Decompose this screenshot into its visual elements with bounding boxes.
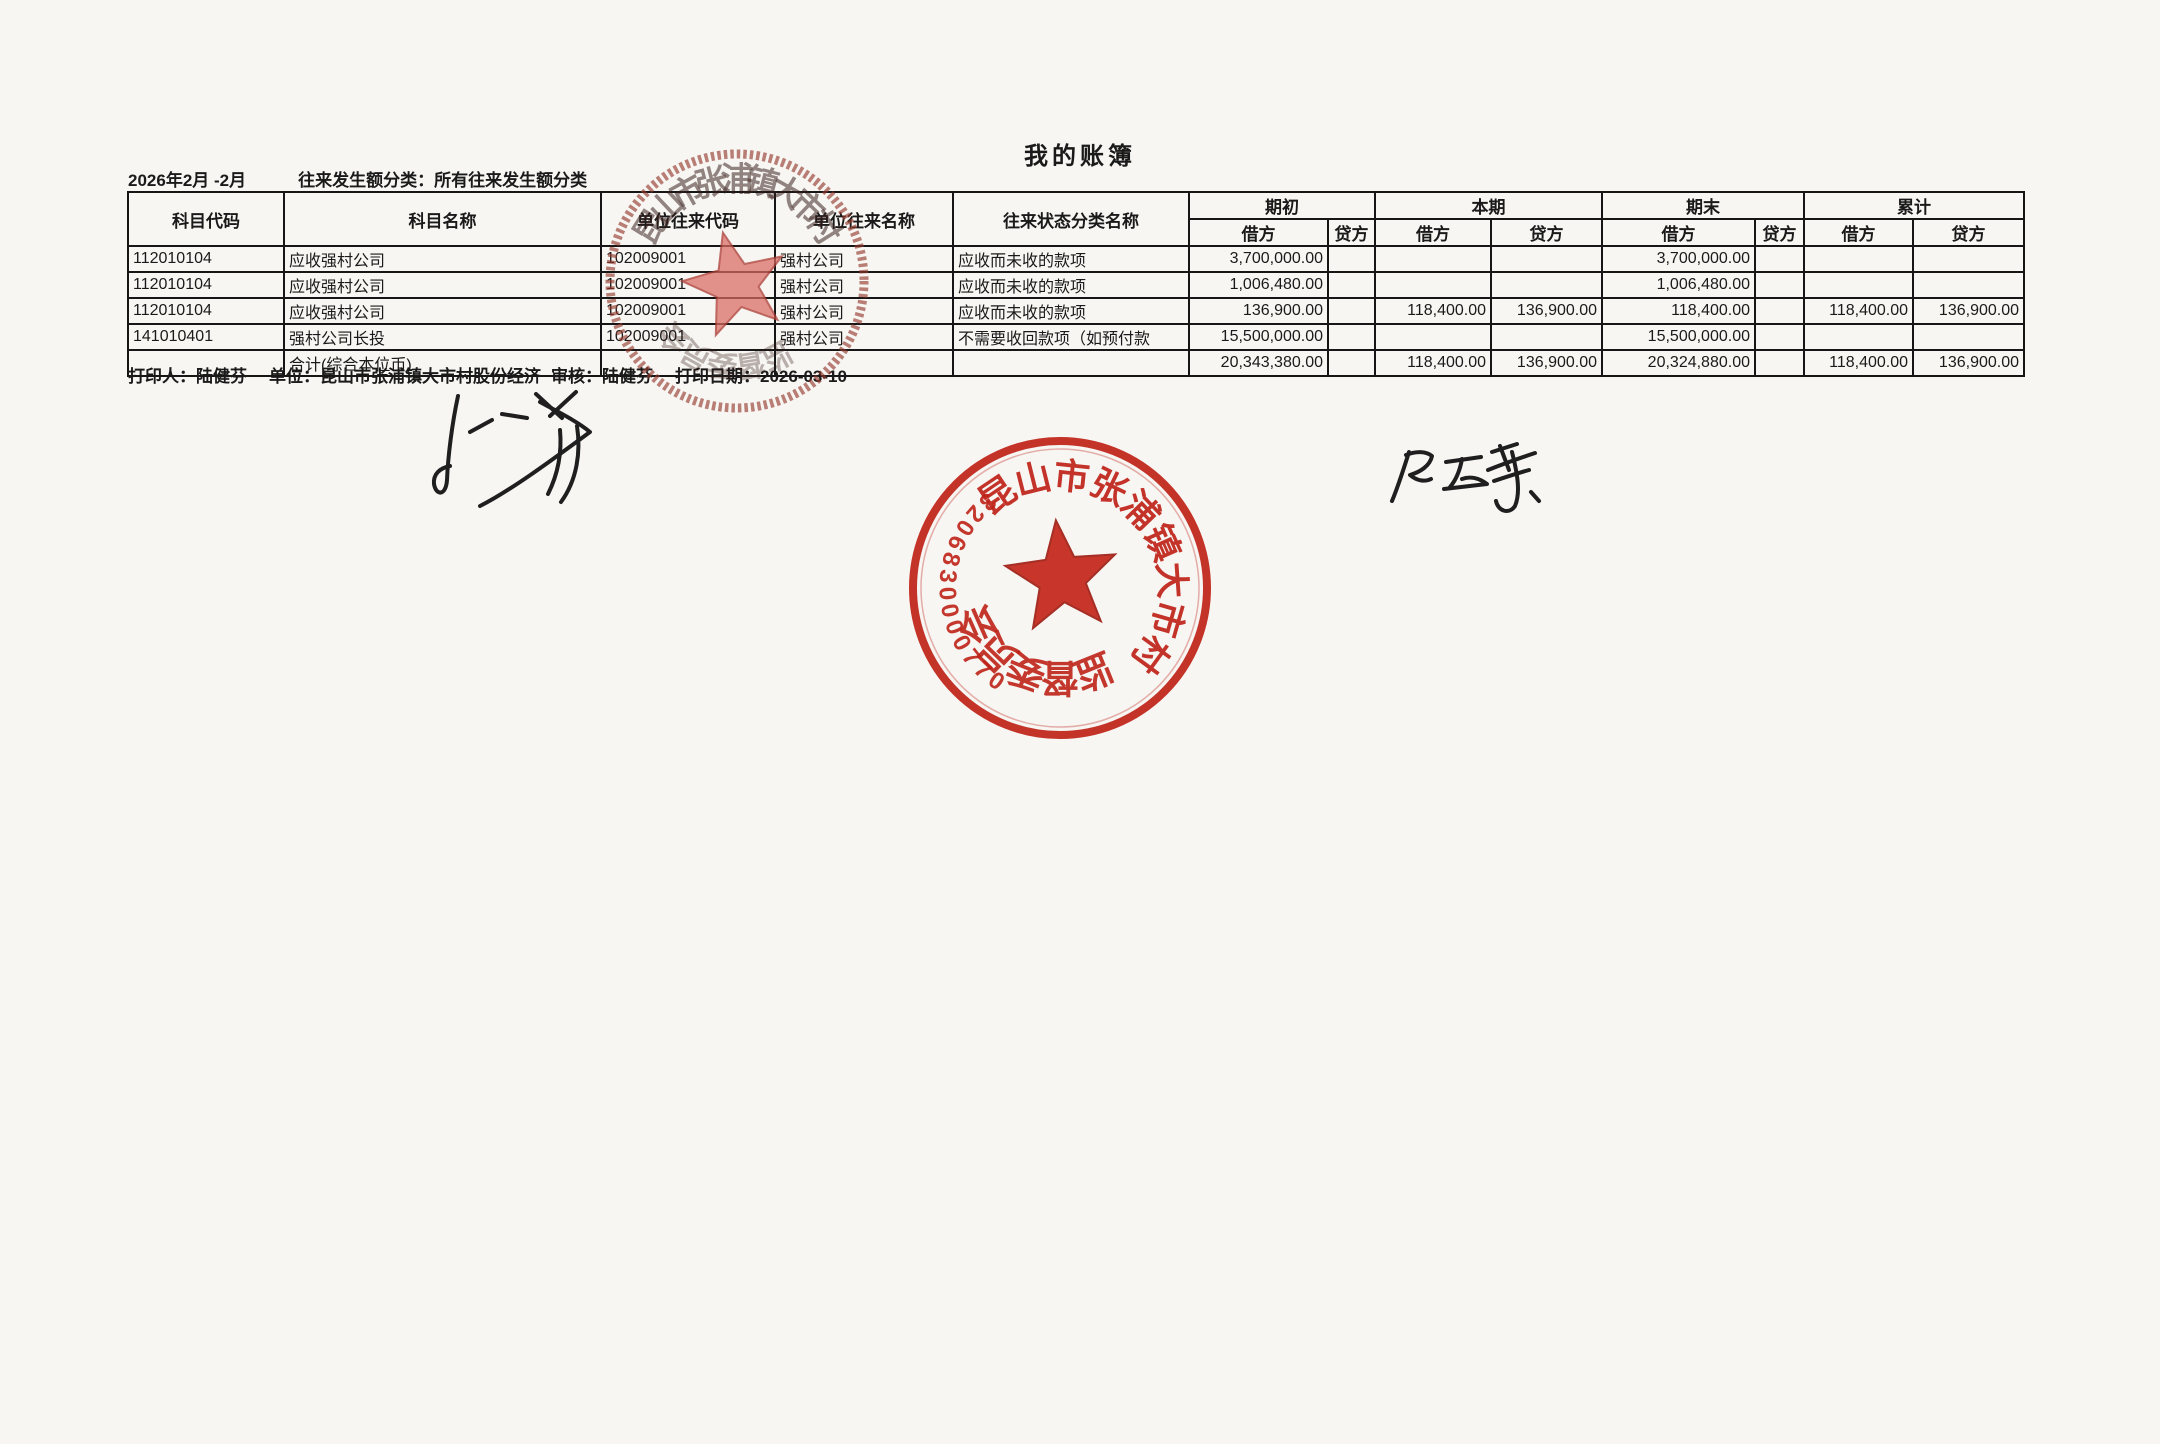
signature-right-ink: [1392, 444, 1539, 511]
cell-accum-debit: 118,400.00: [1804, 350, 1913, 376]
scanned-ledger-page: 我的账簿 2026年2月 -2月往来发生额分类：所有往来发生额分类 科目代码 科…: [0, 0, 2160, 1444]
subheader-credit: 贷方: [1755, 219, 1804, 246]
cell-status: 应收而未收的款项: [953, 246, 1189, 272]
cell-partner-name: 强村公司: [775, 246, 953, 272]
cell-initial-debit: 136,900.00: [1189, 298, 1328, 324]
cell-name: 应收强村公司: [284, 272, 601, 298]
cell-accum-credit: [1913, 272, 2024, 298]
star-icon: [1005, 520, 1115, 628]
table-row: 141010401 强村公司长投 102009001 强村公司 不需要收回款项（…: [128, 324, 2024, 350]
col-header-partner-code: 单位往来代码: [601, 192, 775, 246]
subheader-credit: 贷方: [1328, 219, 1375, 246]
cell-ending-credit: [1755, 324, 1804, 350]
cell-accum-debit: [1804, 246, 1913, 272]
cell-status: 应收而未收的款项: [953, 298, 1189, 324]
svg-text:督: 督: [1041, 656, 1079, 698]
cell-accum-debit: [1804, 272, 1913, 298]
report-filter: 往来发生额分类：所有往来发生额分类: [298, 171, 587, 190]
cell-ending-credit: [1755, 350, 1804, 376]
table-row: 112010104 应收强村公司 102009001 强村公司 应收而未收的款项…: [128, 298, 2024, 324]
cell-accum-credit: [1913, 324, 2024, 350]
col-header-name: 科目名称: [284, 192, 601, 246]
col-header-status: 往来状态分类名称: [953, 192, 1189, 246]
svg-text:0: 0: [946, 631, 976, 656]
group-header-ending: 期末: [1602, 192, 1804, 219]
cell-ending-credit: [1755, 246, 1804, 272]
cell-initial-credit: [1328, 324, 1375, 350]
svg-text:7: 7: [969, 656, 997, 685]
svg-text:0: 0: [983, 666, 1009, 696]
svg-text:3: 3: [974, 487, 1002, 516]
cell-ending-debit: 118,400.00: [1602, 298, 1755, 324]
cell-initial-credit: [1328, 298, 1375, 324]
svg-text:0: 0: [950, 515, 980, 541]
footer-auditor: 审核：陆健芬: [551, 367, 653, 386]
cell-initial-debit: 3,700,000.00: [1189, 246, 1328, 272]
cell-current-credit: [1491, 246, 1602, 272]
cell-code: 112010104: [128, 298, 284, 324]
cell-current-debit: 118,400.00: [1375, 298, 1491, 324]
cell-accum-debit: 118,400.00: [1804, 298, 1913, 324]
cell-initial-debit: 1,006,480.00: [1189, 272, 1328, 298]
cell-initial-credit: [1328, 246, 1375, 272]
cell-ending-credit: [1755, 298, 1804, 324]
cell-partner-code: 102009001: [601, 324, 775, 350]
cell-ending-credit: [1755, 272, 1804, 298]
cell-status: 应收而未收的款项: [953, 272, 1189, 298]
cell-code: 112010104: [128, 246, 284, 272]
subheader-credit: 贷方: [1913, 219, 2024, 246]
report-period: 2026年2月 -2月: [128, 171, 246, 190]
cell-accum-credit: 136,900.00: [1913, 350, 2024, 376]
subheader-debit: 借方: [1375, 219, 1491, 246]
cell-partner-name: 强村公司: [775, 298, 953, 324]
svg-text:0: 0: [939, 616, 969, 638]
svg-text:大: 大: [1150, 561, 1193, 600]
cell-accum-credit: [1913, 246, 2024, 272]
cell-current-credit: [1491, 324, 1602, 350]
cell-name: 强村公司长投: [284, 324, 601, 350]
svg-text:0: 0: [935, 601, 964, 620]
cell-current-debit: [1375, 246, 1491, 272]
official-seal-red: 昆山市张浦镇大市村监督委员会3206830000770: [913, 441, 1207, 735]
group-header-accum: 累计: [1804, 192, 2024, 219]
svg-text:市: 市: [1143, 596, 1192, 642]
table-row: 112010104 应收强村公司 102009001 强村公司 应收而未收的款项…: [128, 272, 2024, 298]
svg-text:3: 3: [934, 568, 962, 584]
cell-accum-debit: [1804, 324, 1913, 350]
cell-current-credit: 136,900.00: [1491, 350, 1602, 376]
cell-initial-debit: 20,343,380.00: [1189, 350, 1328, 376]
ledger-table: 科目代码 科目名称 单位往来代码 单位往来名称 往来状态分类名称 期初 本期 期…: [127, 191, 2025, 377]
cell-current-credit: 136,900.00: [1491, 298, 1602, 324]
cell-accum-credit: 136,900.00: [1913, 298, 2024, 324]
cell-name: 应收强村公司: [284, 246, 601, 272]
subheader-debit: 借方: [1804, 219, 1913, 246]
svg-text:镇: 镇: [1136, 518, 1188, 568]
cell-partner-name: 强村公司: [775, 324, 953, 350]
cell-ending-debit: 15,500,000.00: [1602, 324, 1755, 350]
cell-partner-code: 102009001: [601, 272, 775, 298]
cell-initial-credit: [1328, 272, 1375, 298]
footer-print-date: 打印日期：2026-03-10: [675, 367, 847, 386]
group-header-current: 本期: [1375, 192, 1602, 219]
cell-ending-debit: 20,324,880.00: [1602, 350, 1755, 376]
cell-current-debit: [1375, 272, 1491, 298]
svg-text:6: 6: [942, 531, 972, 554]
cell-current-debit: 118,400.00: [1375, 350, 1491, 376]
report-meta: 2026年2月 -2月往来发生额分类：所有往来发生额分类: [128, 166, 587, 191]
signature-left-ink: [434, 392, 590, 506]
cell-code: 141010401: [128, 324, 284, 350]
svg-text:员: 员: [970, 623, 1027, 680]
svg-text:浦: 浦: [1113, 483, 1168, 537]
svg-text:委: 委: [1001, 644, 1052, 697]
cell-status: [953, 350, 1189, 376]
subheader-debit: 借方: [1189, 219, 1328, 246]
svg-text:8: 8: [936, 549, 966, 569]
svg-text:2: 2: [960, 500, 989, 528]
cell-current-debit: [1375, 324, 1491, 350]
svg-text:张: 张: [1084, 461, 1134, 514]
svg-text:昆: 昆: [971, 468, 1024, 522]
svg-text:7: 7: [956, 644, 986, 671]
cell-initial-debit: 15,500,000.00: [1189, 324, 1328, 350]
svg-text:山: 山: [1010, 455, 1055, 503]
table-row: 112010104 应收强村公司 102009001 强村公司 应收而未收的款项…: [128, 246, 2024, 272]
cell-initial-credit: [1328, 350, 1375, 376]
svg-text:0: 0: [933, 586, 961, 601]
subheader-credit: 贷方: [1491, 219, 1602, 246]
svg-text:市: 市: [1052, 454, 1092, 499]
footer-printer: 打印人：陆健芬: [128, 367, 247, 386]
cell-partner-code: 102009001: [601, 246, 775, 272]
cell-partner-name: 强村公司: [775, 272, 953, 298]
subheader-debit: 借方: [1602, 219, 1755, 246]
col-header-code: 科目代码: [128, 192, 284, 246]
svg-text:监: 监: [1068, 644, 1119, 697]
cell-name: 应收强村公司: [284, 298, 601, 324]
cell-ending-debit: 3,700,000.00: [1602, 246, 1755, 272]
svg-text:村: 村: [1123, 627, 1177, 680]
print-footer: 打印人：陆健芬单位：昆山市张浦镇大市村股份经济审核：陆健芬打印日期：2026-0…: [128, 362, 869, 387]
cell-partner-code: 102009001: [601, 298, 775, 324]
cell-code: 112010104: [128, 272, 284, 298]
group-header-initial: 期初: [1189, 192, 1375, 219]
svg-text:会: 会: [952, 598, 1006, 650]
cell-ending-debit: 1,006,480.00: [1602, 272, 1755, 298]
cell-current-credit: [1491, 272, 1602, 298]
footer-unit: 单位：昆山市张浦镇大市村股份经济: [269, 367, 541, 386]
col-header-partner-name: 单位往来名称: [775, 192, 953, 246]
cell-status: 不需要收回款项（如预付款: [953, 324, 1189, 350]
